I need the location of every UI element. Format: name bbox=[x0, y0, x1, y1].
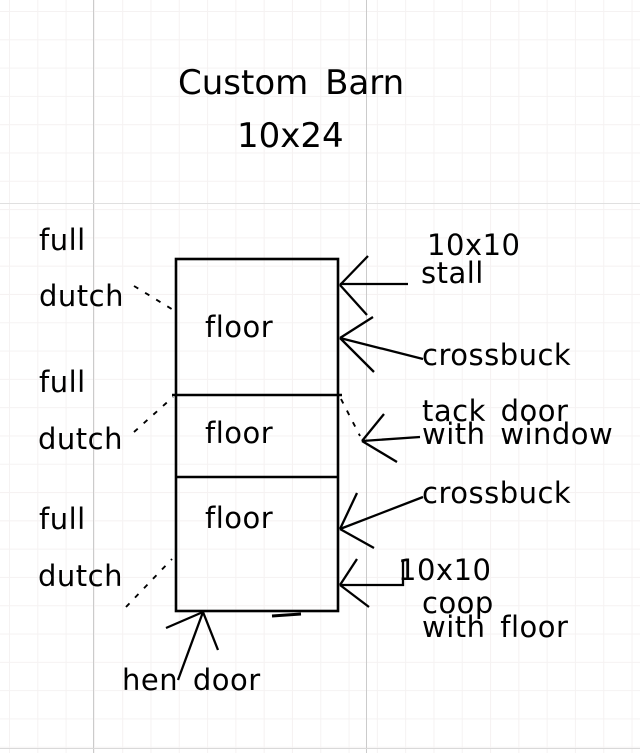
floor-label-tack: floor bbox=[205, 419, 273, 448]
label-full-2: full bbox=[39, 368, 86, 397]
label-tack-door-line2: with window bbox=[422, 420, 613, 449]
dutch-leader-3-dashed bbox=[126, 559, 172, 607]
label-dutch-2: dutch bbox=[38, 425, 123, 454]
tack-door-leader-dashed bbox=[341, 399, 360, 436]
label-stall: stall bbox=[421, 259, 484, 288]
hen-door-mark bbox=[272, 614, 301, 616]
crossbuck-lower-arrow bbox=[340, 493, 423, 548]
label-crossbuck-upper: crossbuck bbox=[422, 341, 571, 370]
label-hen-door: hen door bbox=[122, 666, 261, 695]
dutch-leader-2-dashed bbox=[134, 397, 173, 432]
floor-label-coop: floor bbox=[205, 504, 273, 533]
drawing-size: 10x24 bbox=[237, 119, 344, 153]
crossbuck-upper-arrow bbox=[340, 317, 423, 372]
stall-arrow bbox=[340, 256, 408, 315]
label-full-1: full bbox=[39, 226, 86, 255]
coop-arrow bbox=[340, 559, 403, 607]
label-full-3: full bbox=[39, 505, 86, 534]
label-coop-line2: with floor bbox=[422, 613, 568, 642]
drawing-title: Custom Barn bbox=[178, 66, 404, 100]
drawing-canvas: Custom Barn 10x24 floor floor floor full… bbox=[0, 0, 640, 753]
label-coop-size: 10x10 bbox=[398, 556, 491, 585]
dutch-leader-1-dashed bbox=[134, 286, 175, 311]
tack-door-arrow bbox=[362, 414, 420, 462]
label-dutch-1: dutch bbox=[39, 282, 124, 311]
label-crossbuck-lower: crossbuck bbox=[422, 479, 571, 508]
label-dutch-3: dutch bbox=[38, 562, 123, 591]
floor-label-stall: floor bbox=[205, 313, 273, 342]
